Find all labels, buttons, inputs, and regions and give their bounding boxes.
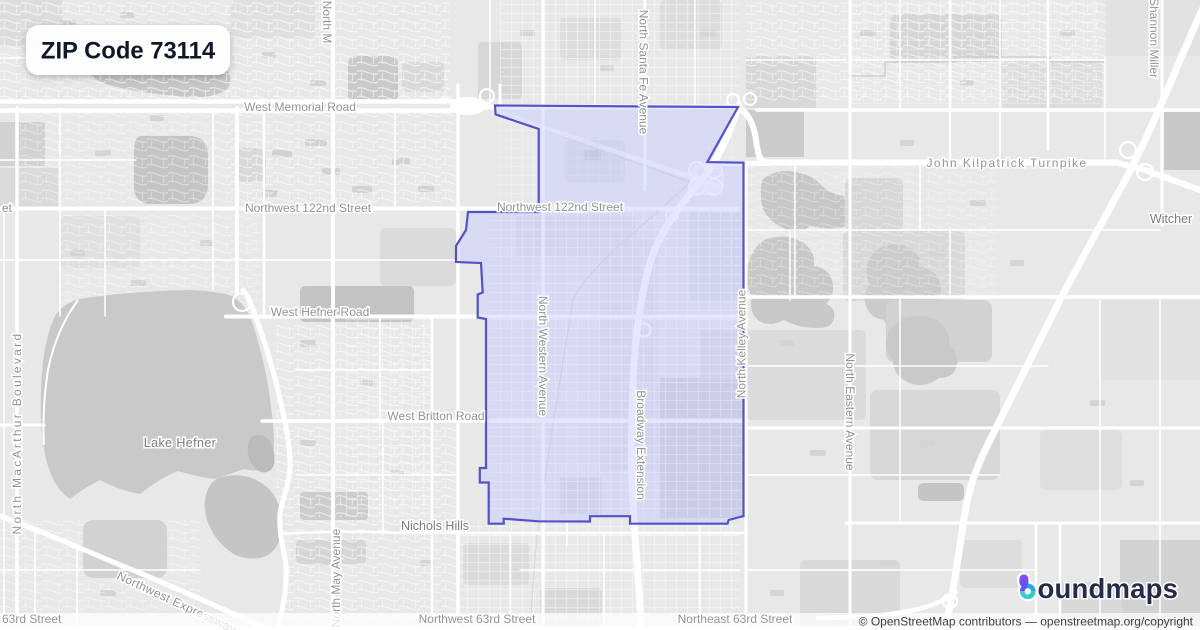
svg-text:Broadway Extension: Broadway Extension <box>634 390 648 499</box>
svg-text:West Britton Road: West Britton Road <box>387 409 484 423</box>
svg-text:North May Avenue: North May Avenue <box>329 528 343 627</box>
svg-text:Nichols Hills: Nichols Hills <box>401 519 469 533</box>
svg-text:North M: North M <box>320 1 334 44</box>
svg-text:oundmaps: oundmaps <box>1038 573 1179 604</box>
svg-text:Northwest 122nd Street: Northwest 122nd Street <box>245 201 372 215</box>
svg-text:West Memorial Road: West Memorial Road <box>244 100 356 114</box>
svg-text:ZIP Code 73114: ZIP Code 73114 <box>41 38 216 65</box>
svg-text:Lake Hefner: Lake Hefner <box>144 436 217 450</box>
svg-text:North Eastern Avenue: North Eastern Avenue <box>843 353 857 471</box>
svg-text:Northwest 63rd Street: Northwest 63rd Street <box>419 612 536 626</box>
svg-text:West Hefner Road: West Hefner Road <box>271 305 370 319</box>
svg-text:Shannon Miller: Shannon Miller <box>1147 0 1161 78</box>
svg-text:Witcher: Witcher <box>1150 212 1192 226</box>
svg-text:North Santa Fe Avenue: North Santa Fe Avenue <box>637 10 651 135</box>
svg-text:© OpenStreetMap contributors —: © OpenStreetMap contributors — openstree… <box>859 615 1194 629</box>
svg-text:North Western Avenue: North Western Avenue <box>536 296 550 417</box>
svg-text:63rd Street: 63rd Street <box>2 612 62 626</box>
svg-text:North Kelley Avenue: North Kelley Avenue <box>735 289 749 398</box>
svg-text:North MacArthur Boulevard: North MacArthur Boulevard <box>10 332 24 535</box>
svg-text:Northwest 122nd Street: Northwest 122nd Street <box>497 200 624 214</box>
svg-text:Northeast 63rd Street: Northeast 63rd Street <box>678 612 793 626</box>
svg-text:et: et <box>2 201 13 215</box>
svg-text:John Kilpatrick Turnpike: John Kilpatrick Turnpike <box>927 156 1088 170</box>
